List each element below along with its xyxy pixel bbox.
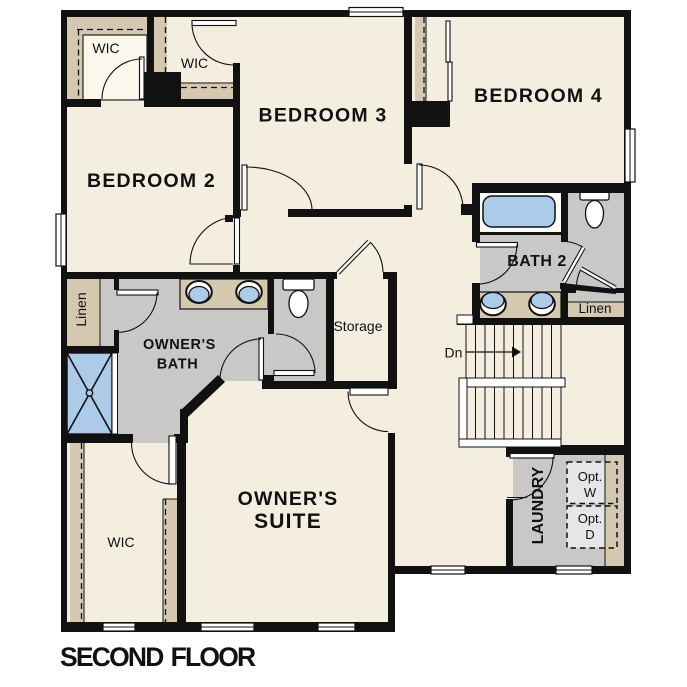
svg-text:BEDROOM 4: BEDROOM 4 — [474, 85, 603, 107]
svg-text:Storage: Storage — [333, 318, 382, 334]
svg-text:Dn: Dn — [445, 345, 463, 361]
svg-text:Linen: Linen — [578, 301, 611, 316]
svg-text:WIC: WIC — [92, 40, 119, 56]
svg-text:W: W — [584, 485, 597, 500]
svg-text:OWNER'S: OWNER'S — [143, 337, 216, 353]
svg-text:D: D — [585, 527, 594, 542]
svg-text:WIC: WIC — [181, 55, 208, 71]
svg-text:BATH: BATH — [157, 357, 199, 373]
svg-text:BEDROOM 3: BEDROOM 3 — [259, 105, 388, 127]
svg-text:Opt.: Opt. — [578, 511, 603, 526]
svg-text:WIC: WIC — [107, 534, 134, 550]
svg-text:SUITE: SUITE — [254, 510, 322, 533]
svg-text:SECOND FLOOR: SECOND FLOOR — [60, 642, 256, 672]
svg-text:BATH 2: BATH 2 — [507, 253, 567, 270]
svg-text:OWNER'S: OWNER'S — [238, 488, 339, 510]
svg-text:Linen: Linen — [73, 292, 89, 326]
svg-text:BEDROOM 2: BEDROOM 2 — [87, 170, 216, 192]
svg-text:LAUNDRY: LAUNDRY — [530, 466, 547, 544]
svg-text:Opt.: Opt. — [578, 469, 603, 484]
